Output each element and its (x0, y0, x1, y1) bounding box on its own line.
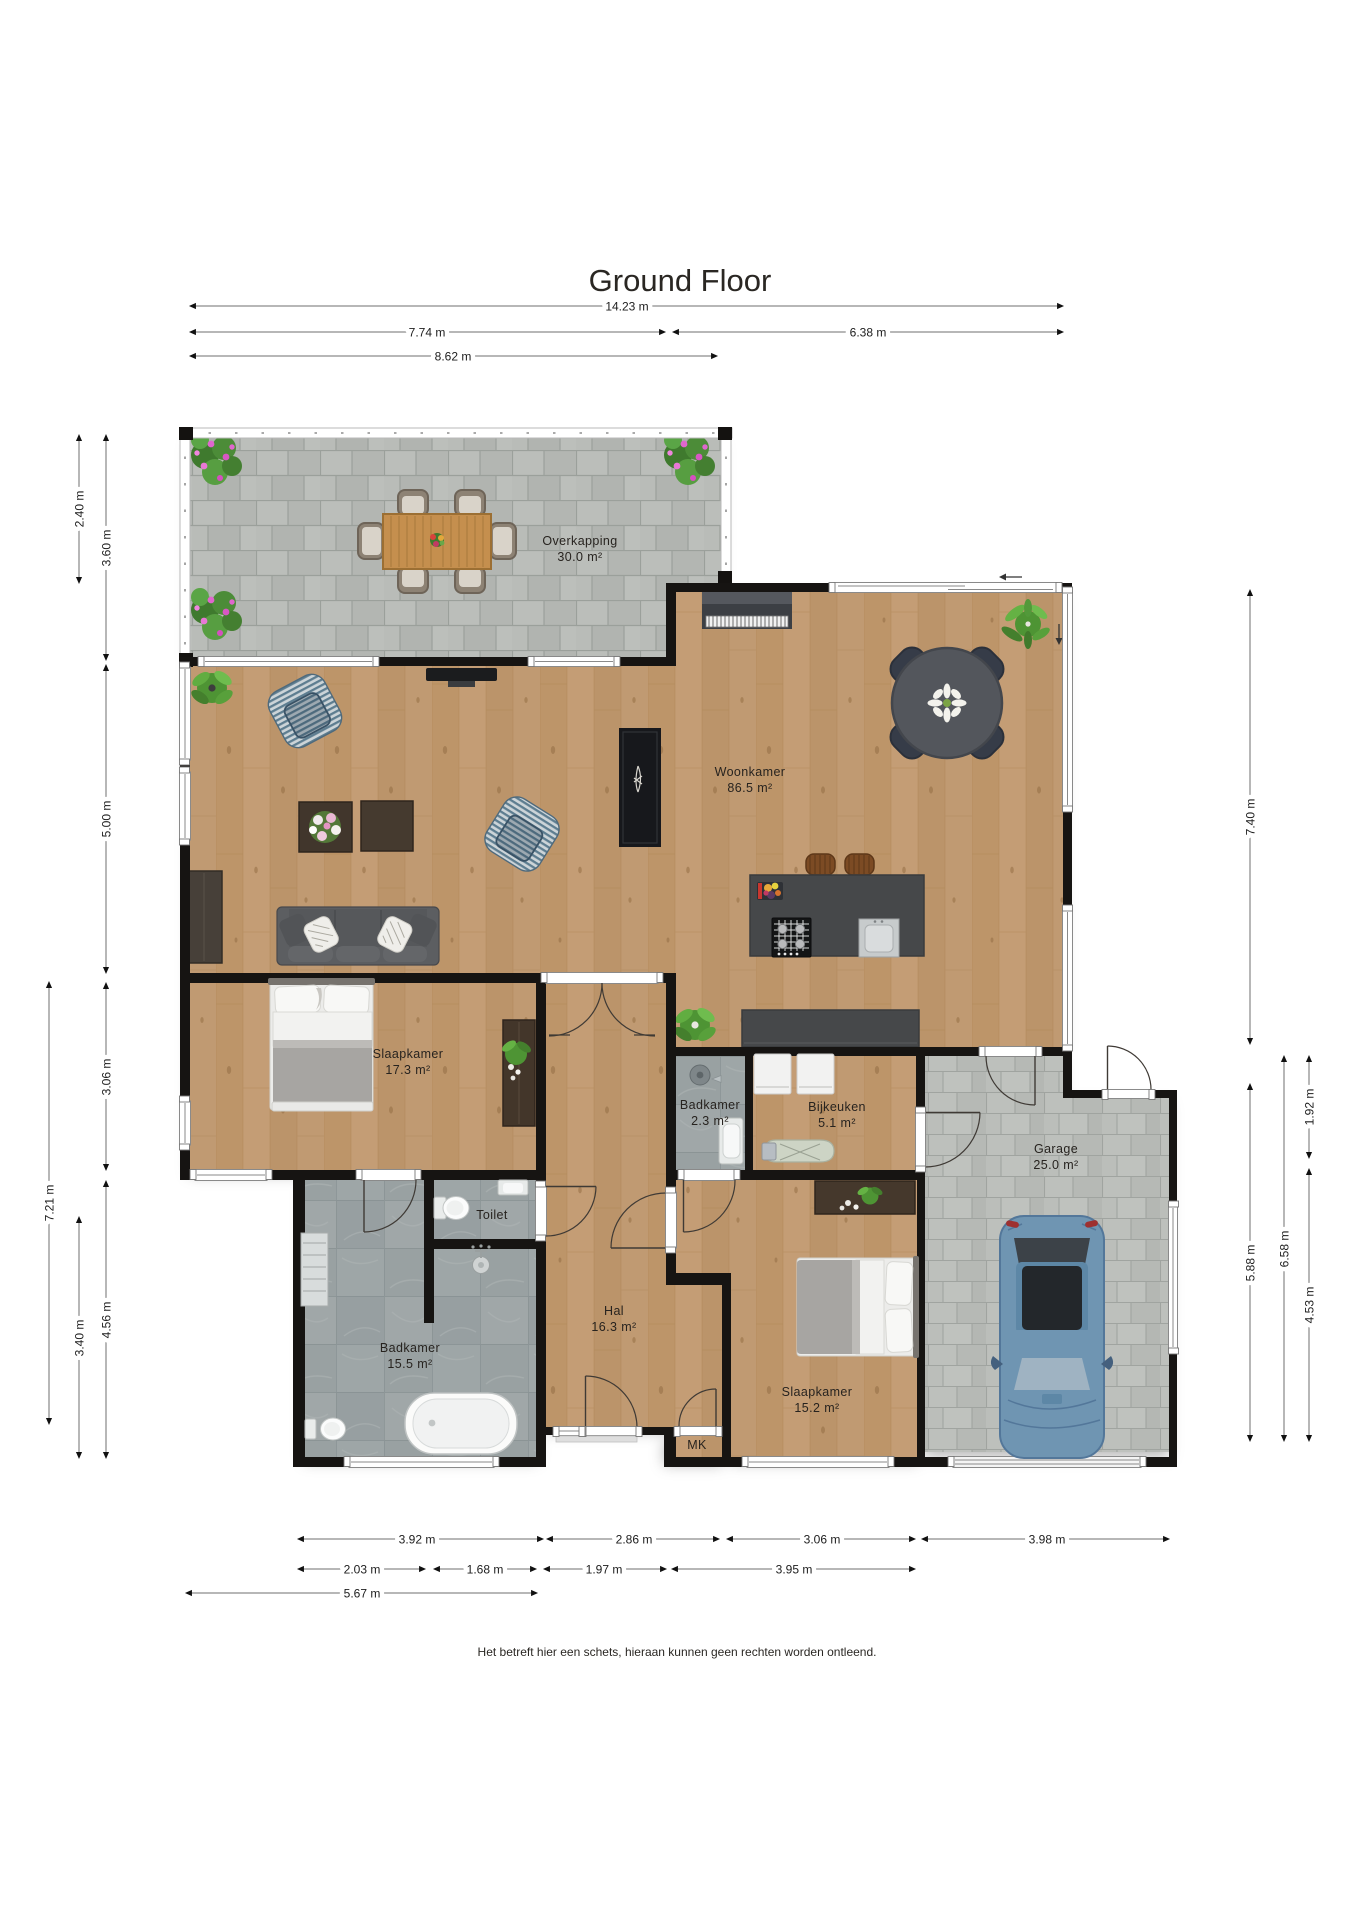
svg-text:2.86 m: 2.86 m (616, 1533, 653, 1547)
svg-text:6.58 m: 6.58 m (1278, 1231, 1292, 1268)
svg-text:4.56 m: 4.56 m (100, 1302, 114, 1339)
svg-text:Bijkeuken: Bijkeuken (808, 1100, 866, 1114)
svg-text:3.95 m: 3.95 m (776, 1563, 813, 1577)
svg-text:3.06 m: 3.06 m (804, 1533, 841, 1547)
svg-text:3.40 m: 3.40 m (73, 1320, 87, 1357)
svg-text:2.40 m: 2.40 m (73, 491, 87, 528)
svg-text:5.00 m: 5.00 m (100, 801, 114, 838)
svg-text:16.3 m²: 16.3 m² (591, 1320, 636, 1334)
svg-text:Ground Floor: Ground Floor (589, 263, 772, 298)
svg-text:15.5 m²: 15.5 m² (387, 1357, 432, 1371)
svg-text:Het betreft hier een schets, h: Het betreft hier een schets, hieraan kun… (478, 1645, 877, 1659)
svg-text:25.0 m²: 25.0 m² (1033, 1158, 1078, 1172)
svg-text:5.88 m: 5.88 m (1244, 1245, 1258, 1282)
svg-text:3.06 m: 3.06 m (100, 1059, 114, 1096)
svg-text:5.67 m: 5.67 m (344, 1587, 381, 1601)
svg-text:15.2 m²: 15.2 m² (794, 1401, 839, 1415)
svg-text:3.98 m: 3.98 m (1029, 1533, 1066, 1547)
svg-text:Slaapkamer: Slaapkamer (373, 1047, 444, 1061)
svg-text:5.1 m²: 5.1 m² (818, 1116, 856, 1130)
svg-text:1.92 m: 1.92 m (1303, 1089, 1317, 1126)
svg-text:6.38 m: 6.38 m (850, 326, 887, 340)
svg-text:Overkapping: Overkapping (542, 534, 617, 548)
svg-text:Toilet: Toilet (476, 1208, 508, 1222)
svg-text:2.03 m: 2.03 m (344, 1563, 381, 1577)
svg-text:7.40 m: 7.40 m (1244, 799, 1258, 836)
svg-text:3.92 m: 3.92 m (399, 1533, 436, 1547)
svg-text:2.3 m²: 2.3 m² (691, 1114, 729, 1128)
svg-text:MK: MK (687, 1438, 707, 1452)
svg-text:1.68 m: 1.68 m (467, 1563, 504, 1577)
svg-text:8.62 m: 8.62 m (435, 350, 472, 364)
svg-text:Hal: Hal (604, 1304, 624, 1318)
svg-text:4.53 m: 4.53 m (1303, 1287, 1317, 1324)
svg-text:86.5 m²: 86.5 m² (727, 781, 772, 795)
svg-text:30.0 m²: 30.0 m² (557, 550, 602, 564)
svg-text:14.23 m: 14.23 m (605, 300, 648, 314)
svg-text:7.74 m: 7.74 m (409, 326, 446, 340)
svg-text:7.21 m: 7.21 m (43, 1185, 57, 1222)
svg-text:Badkamer: Badkamer (380, 1341, 440, 1355)
svg-text:1.97 m: 1.97 m (586, 1563, 623, 1577)
svg-text:3.60 m: 3.60 m (100, 530, 114, 567)
svg-text:Badkamer: Badkamer (680, 1098, 740, 1112)
svg-text:Garage: Garage (1034, 1142, 1078, 1156)
svg-text:17.3 m²: 17.3 m² (385, 1063, 430, 1077)
svg-text:Slaapkamer: Slaapkamer (782, 1385, 853, 1399)
svg-text:Woonkamer: Woonkamer (715, 765, 786, 779)
